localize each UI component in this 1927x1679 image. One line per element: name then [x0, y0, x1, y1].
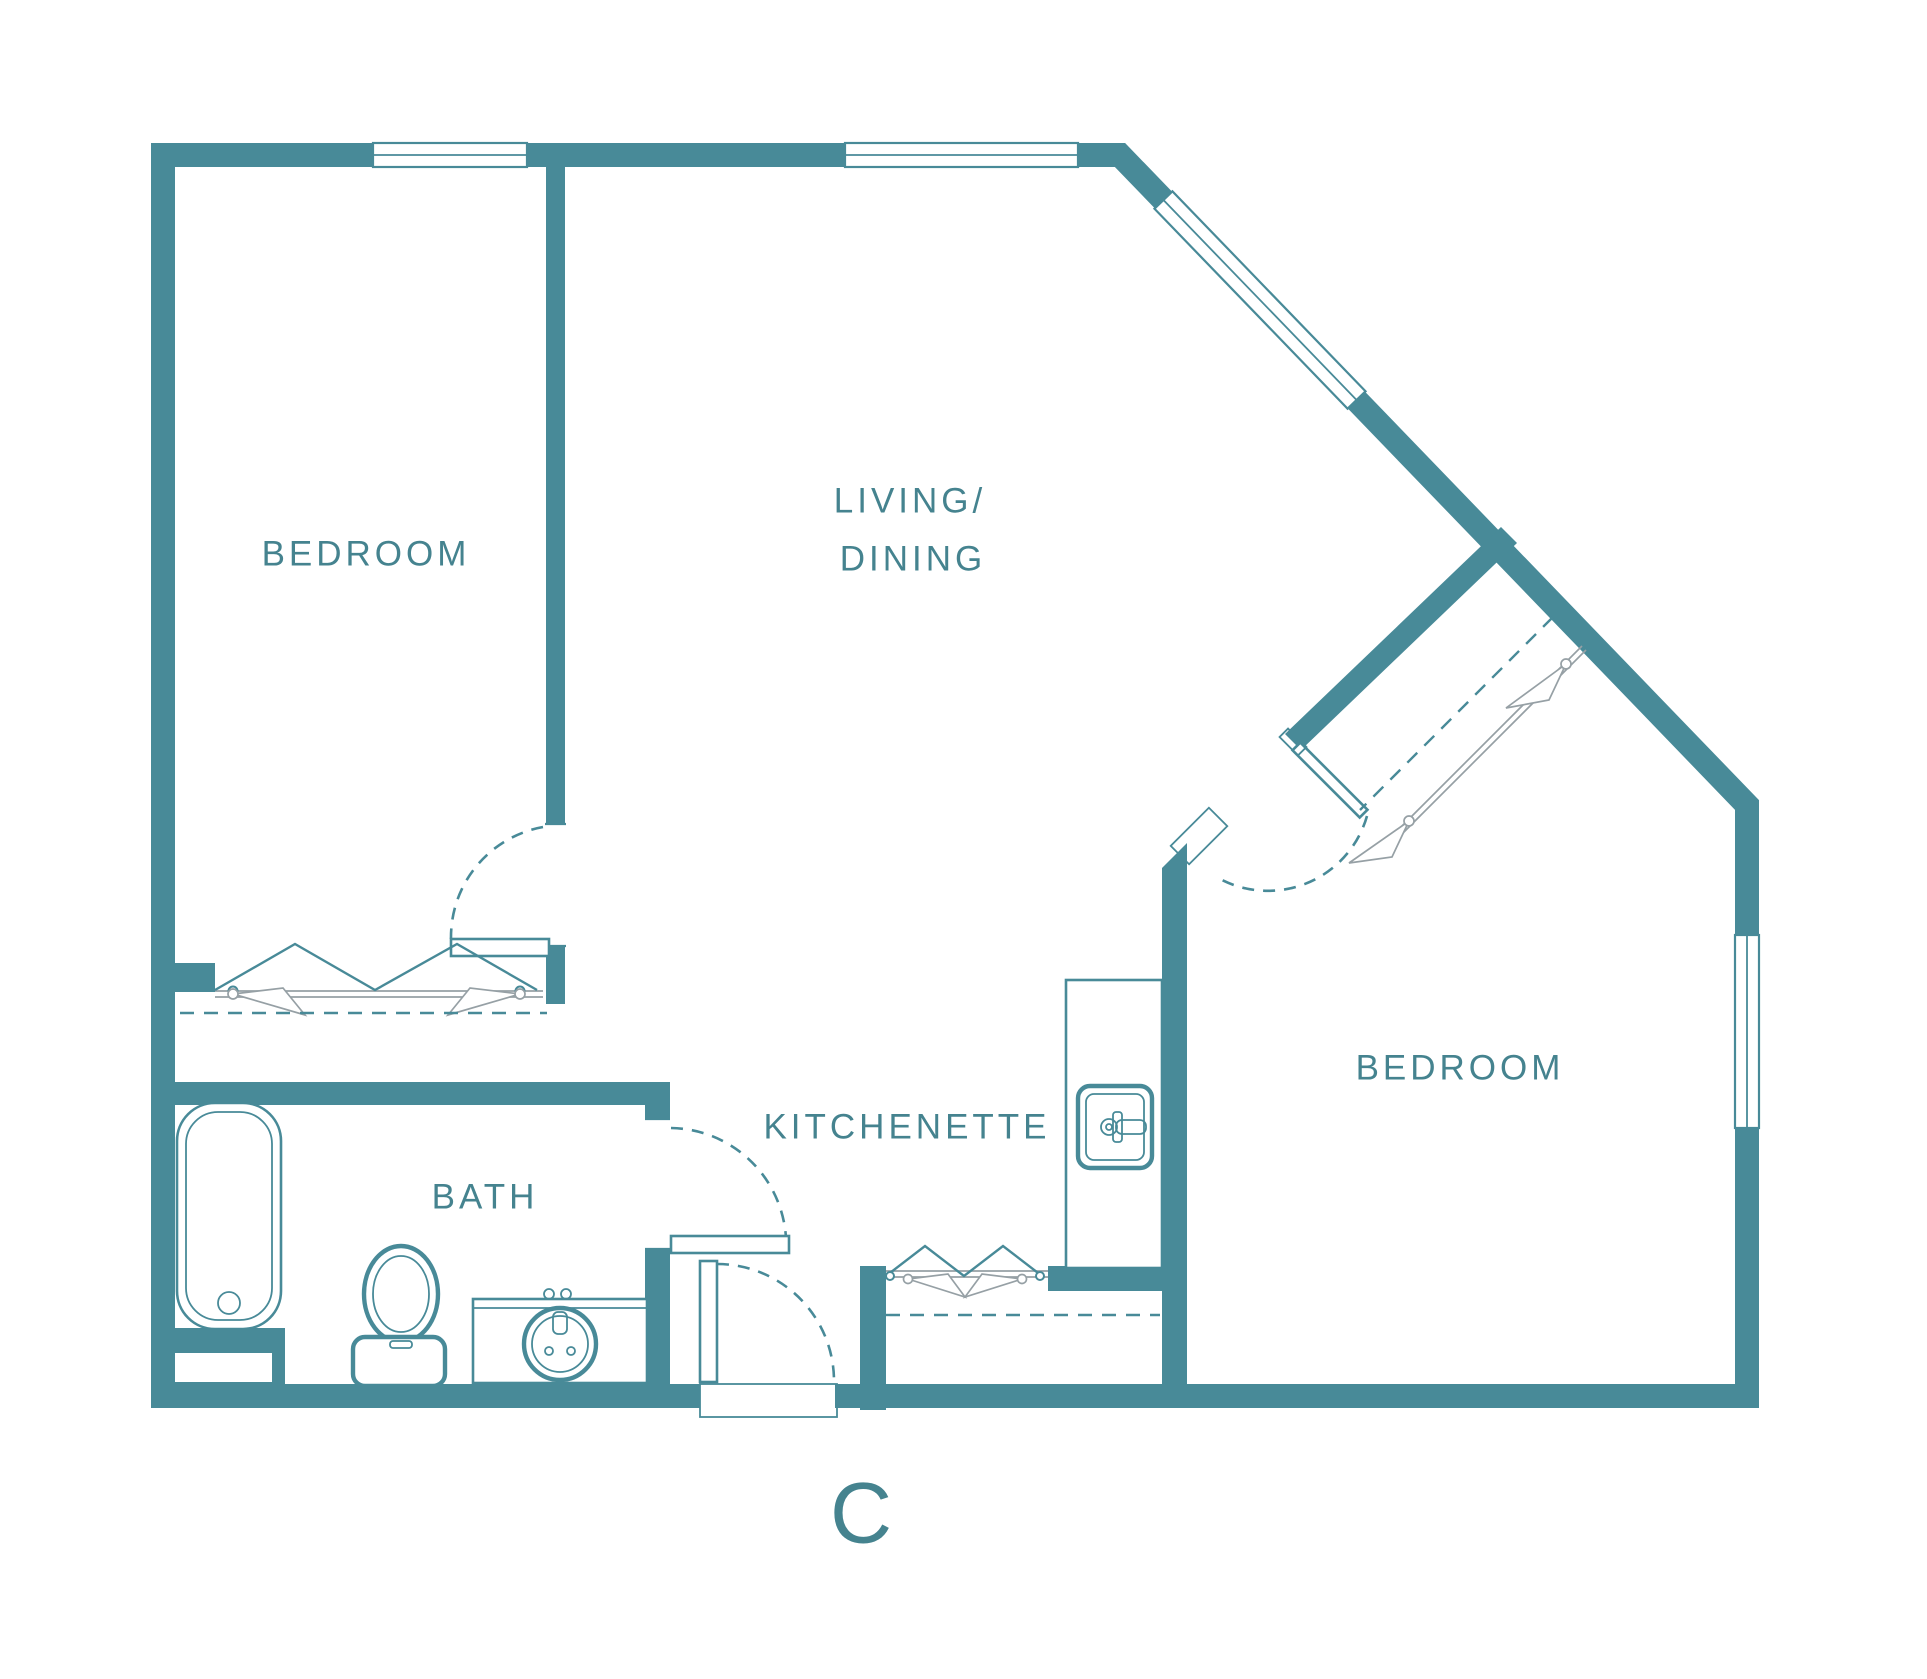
clothes-hanger-icon	[228, 988, 305, 1015]
bathtub-icon	[177, 1103, 281, 1329]
wall-bath-kitchen-lower	[645, 1250, 670, 1398]
wall-living-closet-diagonal	[1285, 527, 1517, 750]
wall-bath-kitchen-upper	[645, 1082, 670, 1118]
room-label-living-line2: DINING	[840, 539, 987, 578]
wall-kitchen-bedroom2	[1162, 868, 1187, 1396]
kitchenette-fixtures	[1066, 980, 1162, 1268]
room-label-bedroom-left: BEDROOM	[262, 534, 471, 573]
clothes-hanger-icon	[1506, 659, 1571, 708]
door-bedroom-right	[1171, 729, 1368, 891]
window-living-top	[845, 143, 1078, 167]
wall-bath-top	[152, 1082, 669, 1105]
door-leaf	[671, 1236, 789, 1253]
door-leaf	[700, 1261, 717, 1382]
clothes-hanger-icon	[1349, 816, 1414, 863]
window-bedroom-right	[1735, 935, 1759, 1128]
wall-closet1-left-stub	[152, 963, 215, 992]
door-leaf	[1293, 743, 1368, 818]
door-leaf	[451, 939, 549, 956]
window-living-diagonal	[1154, 191, 1365, 408]
room-label-bedroom-right: BEDROOM	[1356, 1048, 1565, 1087]
door-opening	[544, 824, 567, 946]
room-bedroom-right-area	[1190, 900, 1730, 1380]
room-label-bath: BATH	[432, 1177, 539, 1216]
bathroom-sink-icon	[473, 1289, 647, 1383]
wall-kitchen-bedroom2-bevel	[1162, 843, 1187, 868]
door-swing-arc	[1220, 816, 1367, 891]
room-label-kitchenette: KITCHENETTE	[763, 1107, 1050, 1146]
wall-entry-right-stub	[860, 1266, 886, 1410]
clothes-hanger-icon	[448, 988, 525, 1015]
wall-niche	[175, 1353, 272, 1382]
wall-closet2-front-stub	[1048, 1266, 1162, 1291]
kitchen-sink-icon	[1078, 1086, 1152, 1168]
door-opening	[700, 1382, 835, 1410]
room-label-living-line1: LIVING/	[834, 481, 986, 520]
room-areas	[175, 166, 1730, 1380]
floor-plan-unit-c: BEDROOM LIVING/ DINING KITCHENETTE BATH …	[0, 0, 1927, 1679]
door-opening	[643, 1119, 672, 1249]
plan-unit-label: C	[830, 1466, 892, 1562]
wall-bedroom1-living	[546, 165, 565, 823]
window-bedroom-left	[373, 143, 527, 167]
